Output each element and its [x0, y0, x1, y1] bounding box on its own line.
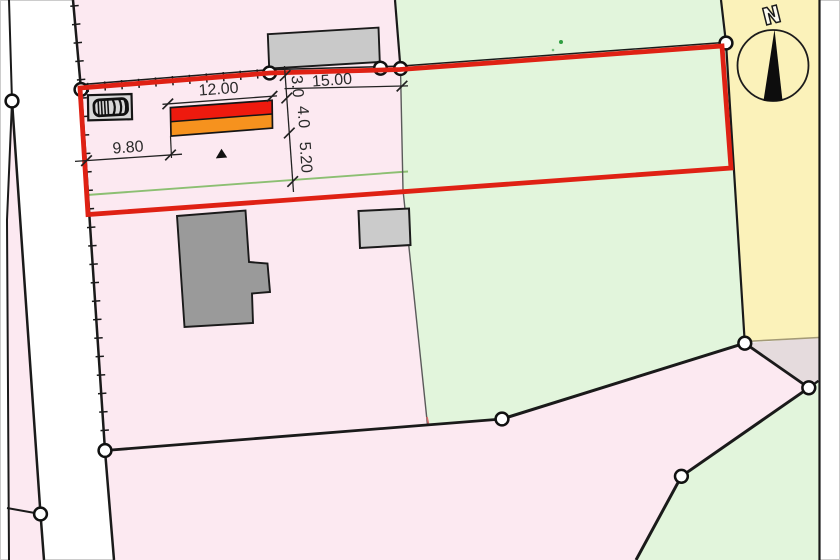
svg-text:15.00: 15.00	[312, 71, 353, 91]
svg-text:9.80: 9.80	[112, 138, 144, 157]
svg-text:3.0: 3.0	[288, 75, 307, 98]
svg-text:5.20: 5.20	[296, 141, 315, 173]
svg-text:12.00: 12.00	[198, 80, 239, 100]
svg-text:4.0: 4.0	[294, 105, 313, 128]
